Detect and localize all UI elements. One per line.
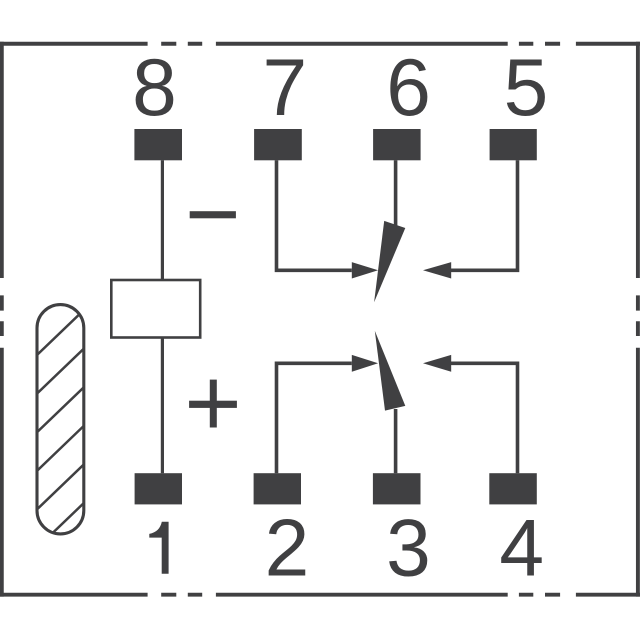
svg-text:2: 2 <box>265 504 310 594</box>
svg-text:4: 4 <box>499 504 544 594</box>
svg-text:8: 8 <box>132 43 177 133</box>
svg-text:6: 6 <box>386 43 431 133</box>
svg-text:3: 3 <box>386 504 431 594</box>
svg-text:5: 5 <box>504 43 549 133</box>
svg-text:7: 7 <box>262 43 307 133</box>
